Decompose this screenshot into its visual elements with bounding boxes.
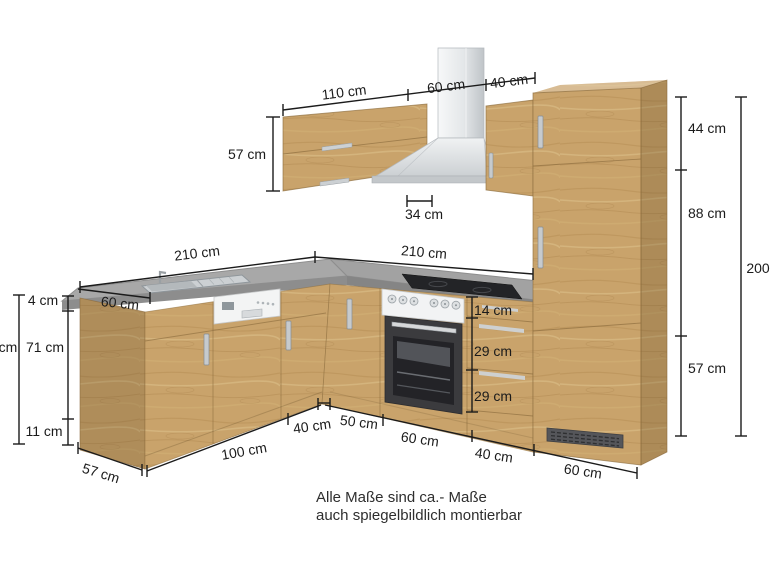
dim-drawer-mid-label: 29 cm	[474, 344, 512, 358]
dim-drawer-top-label: 14 cm	[474, 303, 512, 317]
door-handle	[538, 227, 543, 268]
dim-wall-cab-depth-label: 34 cm	[405, 207, 443, 221]
door-handle	[489, 153, 493, 178]
caption-line-2: auch spiegelbildlich montierbar	[316, 507, 522, 525]
hood-rim	[372, 176, 497, 183]
dim-counter-right-label: 210 cm	[401, 243, 448, 261]
corner-door-handle	[347, 299, 352, 329]
dim-tall-mid-label: 88 cm	[688, 206, 726, 220]
wall-cabinet-40	[486, 100, 533, 196]
dim-tall-total-label: 200	[746, 261, 769, 275]
door-handle	[538, 116, 543, 148]
dim-drawer-bottom-label: 29 cm	[474, 389, 512, 403]
oven	[382, 289, 464, 414]
dim-left-front-label: 71 cm	[26, 340, 64, 354]
dim-counter-depth-label: 60 cm	[100, 294, 139, 312]
dim-left-worktop-label: 4 cm	[28, 293, 58, 307]
dishwasher-display	[222, 302, 234, 310]
base-cabinets-left	[80, 284, 330, 469]
kitchen-dimension-diagram: 110 cm 60 cm 40 cm 57 cm 34 cm 210 cm 21…	[0, 0, 770, 578]
caption: Alle Maße sind ca.- Maße auch spiegelbil…	[316, 489, 522, 525]
dim-left-plinth-label: 11 cm	[25, 424, 62, 438]
caption-line-1: Alle Maße sind ca.- Maße	[316, 489, 522, 507]
dim-left-total-label: cm	[0, 340, 17, 354]
tall-cabinet	[533, 80, 667, 465]
dim-tall-top-label: 44 cm	[688, 121, 726, 135]
dim-wall-cab-height-label: 57 cm	[228, 147, 266, 161]
dim-tall-bottom-label: 57 cm	[688, 361, 726, 375]
